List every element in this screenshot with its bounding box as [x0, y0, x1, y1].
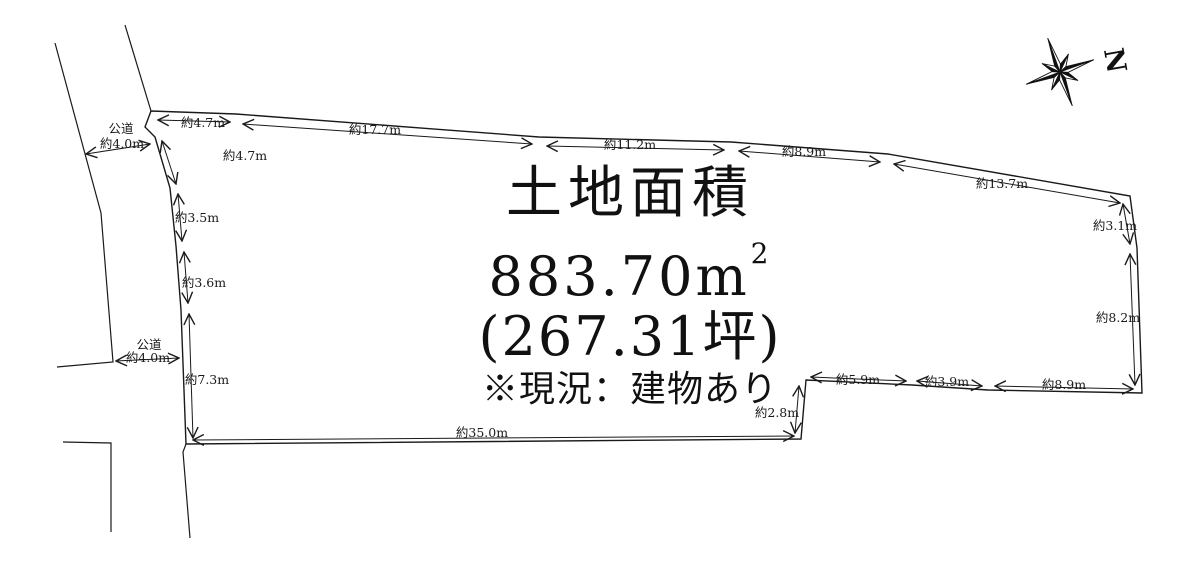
area-unit: m [695, 245, 749, 308]
dimension-line [162, 141, 176, 184]
land-survey-diagram: N 約4.7m約17.7m約11.2m約8.9m約13.7m約3.1m約8.2m… [0, 0, 1200, 563]
road-label: 約4.0m [100, 136, 144, 151]
compass-rose [1014, 26, 1106, 118]
dimension-label: 約3.1m [1093, 218, 1137, 233]
dimension-label: 約3.6m [182, 275, 226, 290]
road-edge-line [55, 43, 113, 367]
land-area-square-meters: 883.70m2 [380, 225, 880, 306]
dimension-label: 約11.2m [604, 137, 656, 152]
dimension-label: 約3.9m [925, 374, 969, 389]
road-edge-line [183, 444, 190, 538]
dimension-label: 約4.7m [223, 148, 267, 163]
dimension-label: 約8.2m [1096, 310, 1140, 325]
dimension-label: 約17.7m [349, 122, 401, 137]
compass-star-light-half [1014, 26, 1106, 118]
land-area-title: 土地面積 [380, 163, 880, 225]
area-value: 883.70 [489, 245, 696, 308]
dimension-label: 約4.7m [181, 115, 225, 130]
dimension-label: 約13.7m [976, 176, 1028, 191]
road-label: 約4.0m [126, 350, 170, 365]
area-exponent: 2 [751, 237, 772, 270]
current-status-note: ※現況：建物あり [380, 368, 880, 412]
dimension-label: 約35.0m [456, 425, 508, 440]
dimension-label: 約7.3m [185, 372, 229, 387]
road-edge-line [63, 442, 111, 532]
road-label: 公道 [108, 121, 134, 136]
land-area-text-block: 土地面積 883.70m2 (267.31坪) ※現況：建物あり [380, 163, 880, 412]
road-edge-line [125, 25, 151, 111]
dimension-label: 約8.9m [782, 144, 826, 159]
dimension-label: 約3.5m [175, 210, 219, 225]
dimension-label: 約8.9m [1042, 377, 1086, 392]
land-area-tsubo: (267.31坪) [380, 306, 880, 368]
north-indicator-label: N [1097, 46, 1132, 76]
road-lines [55, 25, 190, 538]
